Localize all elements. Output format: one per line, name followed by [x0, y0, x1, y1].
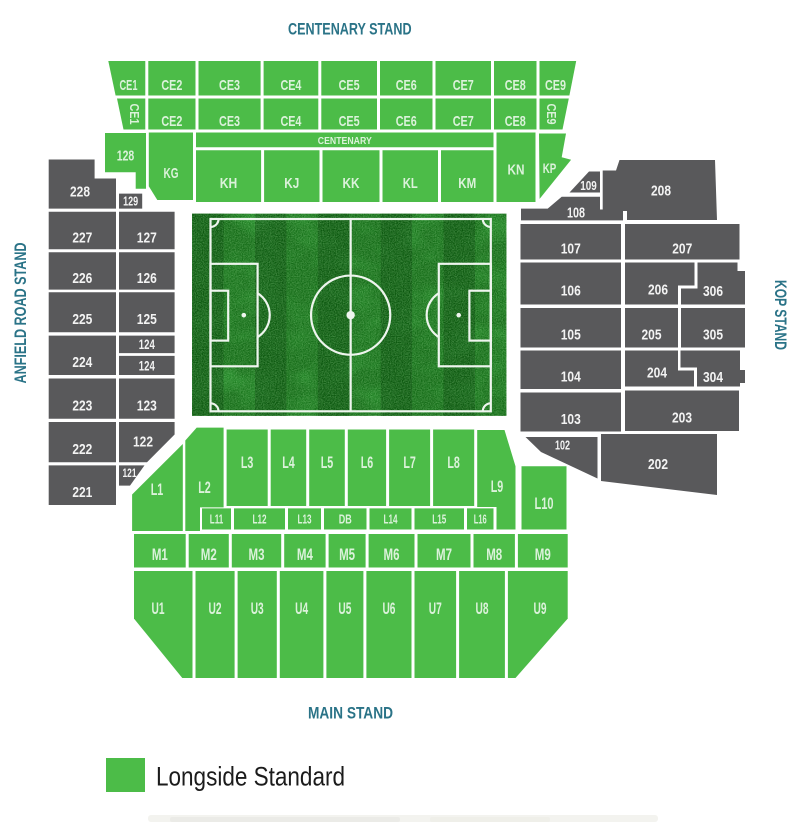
- svg-text:KG: KG: [164, 166, 179, 182]
- svg-text:L9: L9: [491, 477, 504, 496]
- svg-text:CE6: CE6: [396, 114, 417, 130]
- svg-text:M2: M2: [201, 545, 217, 564]
- svg-text:L5: L5: [321, 453, 334, 472]
- svg-text:204: 204: [647, 364, 667, 381]
- svg-text:L3: L3: [241, 453, 254, 472]
- svg-text:203: 203: [672, 410, 692, 427]
- svg-text:105: 105: [561, 327, 581, 344]
- svg-text:KH: KH: [220, 176, 238, 192]
- svg-text:L15: L15: [432, 512, 446, 527]
- svg-text:KL: KL: [403, 176, 418, 192]
- svg-text:305: 305: [703, 327, 723, 344]
- svg-text:202: 202: [648, 456, 668, 473]
- svg-text:109: 109: [580, 178, 597, 193]
- svg-text:M4: M4: [297, 545, 313, 564]
- svg-text:208: 208: [651, 182, 671, 199]
- svg-text:L8: L8: [447, 453, 460, 472]
- svg-text:U2: U2: [209, 599, 222, 618]
- svg-text:L7: L7: [403, 453, 416, 472]
- svg-text:KN: KN: [508, 163, 525, 179]
- svg-text:121: 121: [123, 466, 137, 480]
- svg-text:KOP STAND: KOP STAND: [771, 280, 789, 350]
- svg-text:L6: L6: [361, 453, 374, 472]
- svg-text:CE8: CE8: [505, 78, 526, 94]
- svg-text:L11: L11: [210, 512, 224, 527]
- svg-text:M9: M9: [535, 545, 551, 564]
- svg-text:206: 206: [648, 281, 668, 298]
- svg-text:M3: M3: [249, 545, 265, 564]
- svg-text:L4: L4: [282, 453, 295, 472]
- svg-text:CE4: CE4: [280, 78, 302, 94]
- svg-text:304: 304: [703, 369, 723, 386]
- svg-text:CE2: CE2: [161, 114, 182, 130]
- svg-text:103: 103: [561, 411, 581, 428]
- svg-text:CE3: CE3: [219, 78, 240, 94]
- svg-text:DB: DB: [339, 512, 352, 527]
- svg-text:106: 106: [561, 282, 581, 299]
- svg-text:225: 225: [72, 311, 92, 328]
- svg-text:127: 127: [137, 229, 157, 246]
- svg-text:CE3: CE3: [219, 114, 240, 130]
- svg-text:CE8: CE8: [505, 114, 526, 130]
- svg-text:221: 221: [72, 484, 92, 501]
- svg-text:104: 104: [561, 369, 581, 386]
- svg-text:122: 122: [133, 433, 153, 450]
- svg-text:128: 128: [117, 147, 135, 164]
- svg-text:CE7: CE7: [453, 114, 474, 130]
- svg-text:CENTENARY: CENTENARY: [318, 135, 372, 147]
- svg-text:ANFIELD ROAD STAND: ANFIELD ROAD STAND: [12, 242, 30, 383]
- svg-text:CE4: CE4: [280, 114, 302, 130]
- svg-text:102: 102: [555, 438, 570, 452]
- svg-text:L13: L13: [298, 512, 312, 527]
- svg-text:L2: L2: [198, 478, 211, 497]
- svg-text:205: 205: [642, 327, 662, 344]
- svg-text:CE5: CE5: [339, 78, 360, 94]
- svg-text:U6: U6: [382, 599, 395, 618]
- svg-text:108: 108: [567, 206, 585, 222]
- svg-text:L14: L14: [384, 512, 398, 527]
- svg-text:123: 123: [137, 398, 157, 415]
- svg-text:KK: KK: [343, 176, 360, 192]
- svg-text:228: 228: [70, 183, 90, 200]
- svg-text:306: 306: [703, 283, 723, 300]
- svg-text:U3: U3: [251, 599, 264, 618]
- svg-text:107: 107: [561, 241, 581, 258]
- svg-text:124: 124: [139, 358, 155, 373]
- svg-text:CE1: CE1: [127, 104, 141, 125]
- svg-text:L12: L12: [253, 512, 267, 527]
- svg-text:223: 223: [72, 398, 92, 415]
- svg-text:M5: M5: [339, 545, 355, 564]
- svg-text:224: 224: [72, 354, 92, 371]
- svg-text:226: 226: [72, 270, 92, 287]
- svg-text:KP: KP: [543, 160, 557, 176]
- svg-text:125: 125: [137, 311, 157, 328]
- svg-text:CE6: CE6: [396, 78, 417, 94]
- svg-text:207: 207: [672, 241, 692, 258]
- svg-text:U9: U9: [534, 599, 547, 618]
- svg-text:MAIN STAND: MAIN STAND: [308, 705, 393, 723]
- svg-text:M8: M8: [486, 545, 502, 564]
- svg-text:126: 126: [137, 270, 157, 287]
- svg-text:KM: KM: [458, 176, 476, 192]
- svg-text:124: 124: [139, 337, 155, 352]
- svg-text:M6: M6: [384, 545, 400, 564]
- svg-text:U8: U8: [476, 599, 489, 618]
- svg-text:U5: U5: [338, 599, 351, 618]
- svg-text:CE2: CE2: [161, 78, 182, 94]
- svg-text:M7: M7: [436, 545, 452, 564]
- svg-text:KJ: KJ: [284, 176, 299, 192]
- svg-text:CE5: CE5: [339, 114, 360, 130]
- svg-text:U1: U1: [152, 599, 165, 618]
- svg-text:M1: M1: [152, 545, 168, 564]
- svg-text:CE9: CE9: [544, 104, 558, 125]
- svg-text:CE7: CE7: [453, 78, 474, 94]
- svg-text:222: 222: [72, 441, 92, 458]
- svg-text:227: 227: [72, 229, 92, 246]
- svg-text:L16: L16: [474, 512, 487, 527]
- svg-text:129: 129: [123, 195, 138, 209]
- svg-text:U4: U4: [295, 599, 308, 618]
- svg-text:CE1: CE1: [120, 78, 138, 94]
- svg-text:L10: L10: [535, 494, 554, 513]
- svg-text:CE9: CE9: [545, 78, 566, 94]
- svg-text:U7: U7: [429, 599, 442, 618]
- svg-text:L1: L1: [151, 480, 164, 499]
- svg-text:CENTENARY STAND: CENTENARY STAND: [288, 21, 412, 39]
- svg-text:Longside Standard: Longside Standard: [156, 762, 345, 792]
